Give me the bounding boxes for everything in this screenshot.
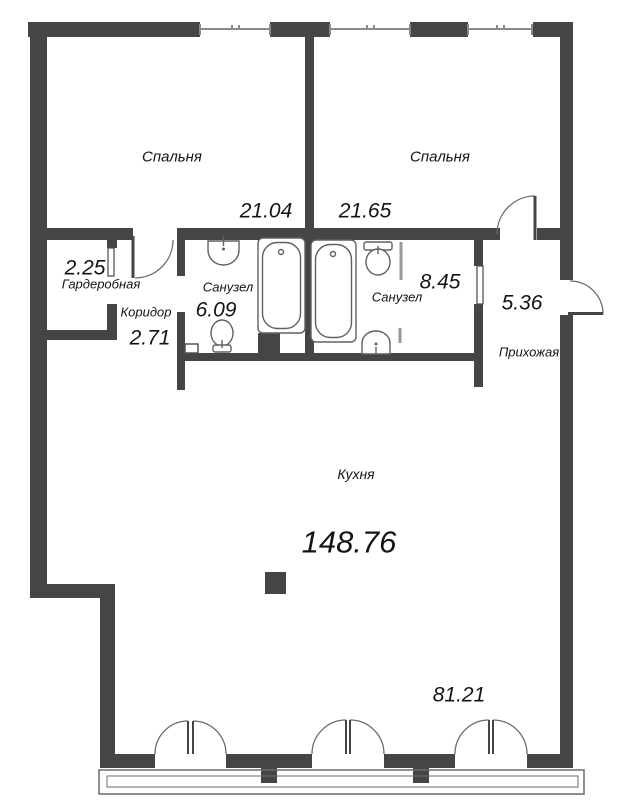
- room-area-kitchen: 148.76: [302, 527, 397, 558]
- room-label-corridor: Коридор: [121, 306, 172, 319]
- kitchen-column: [265, 572, 286, 594]
- wall-segment: [32, 330, 117, 340]
- wall-segment: [177, 228, 500, 240]
- sink-icon: [208, 236, 239, 265]
- room-area-corridor: 2.71: [130, 328, 171, 349]
- wall-segment: [30, 584, 115, 598]
- room-label-bedroom1: Спальня: [142, 150, 202, 165]
- floor-plan: Спальня 21.04 Спальня 21.65 2.25 Гардеро…: [0, 0, 631, 800]
- door-entrance: [568, 281, 603, 314]
- bathtub-icon: [311, 240, 356, 342]
- wall-segment: [560, 22, 573, 280]
- door-wardrobe-leaf: [108, 248, 114, 276]
- french-door: [155, 721, 226, 754]
- floor-plan-drawing: [0, 0, 631, 800]
- room-area-bathroom2: 8.45: [420, 272, 461, 293]
- room-area-terrace: 81.21: [433, 685, 486, 706]
- door-bedroom1: [133, 236, 173, 278]
- door-bathroom2-leaf: [477, 266, 483, 304]
- wall-segment: [474, 304, 483, 387]
- terrace-outline: [99, 770, 584, 794]
- window-icon: [329, 22, 411, 37]
- wall-segment: [177, 353, 483, 361]
- wall-segment: [177, 312, 185, 390]
- wall-segment: [107, 240, 117, 248]
- window-icon: [199, 22, 271, 37]
- wall-segment: [537, 228, 560, 240]
- wall-segment: [226, 754, 312, 768]
- room-label-hallway: Прихожая: [499, 346, 559, 359]
- sink-icon: [362, 331, 390, 354]
- wall-segment: [30, 22, 47, 598]
- room-area-hallway: 5.36: [502, 293, 543, 314]
- door-bedroom2: [497, 196, 535, 240]
- exterior-walls: [28, 22, 573, 768]
- wall-segment: [474, 240, 483, 266]
- niche-box: [185, 344, 198, 353]
- room-area-bedroom1: 21.04: [240, 201, 293, 222]
- room-label-bedroom2: Спальня: [410, 150, 470, 165]
- room-label-wardrobe: Гардеробная: [62, 278, 141, 291]
- wall-segment: [100, 598, 115, 766]
- room-label-bathroom2: Санузел: [372, 291, 422, 304]
- windows: [199, 22, 533, 37]
- room-area-bedroom2: 21.65: [339, 201, 392, 222]
- bathtub-icon: [258, 238, 305, 333]
- wall-segment: [32, 228, 133, 240]
- room-label-kitchen: Кухня: [337, 467, 374, 481]
- room-label-bathroom1: Санузел: [203, 281, 253, 294]
- wall-segment: [177, 240, 185, 276]
- french-door: [312, 720, 384, 754]
- room-area-wardrobe: 2.25: [65, 258, 106, 279]
- wall-segment: [384, 754, 455, 768]
- room-area-bathroom1: 6.09: [196, 300, 237, 321]
- interior-walls: [32, 37, 560, 390]
- shaft-column: [258, 333, 280, 353]
- toilet-icon: [211, 320, 233, 352]
- window-icon: [467, 22, 533, 37]
- toilet-icon: [364, 242, 392, 275]
- wall-segment: [560, 315, 573, 768]
- french-door: [455, 720, 527, 754]
- wall-segment: [100, 754, 155, 768]
